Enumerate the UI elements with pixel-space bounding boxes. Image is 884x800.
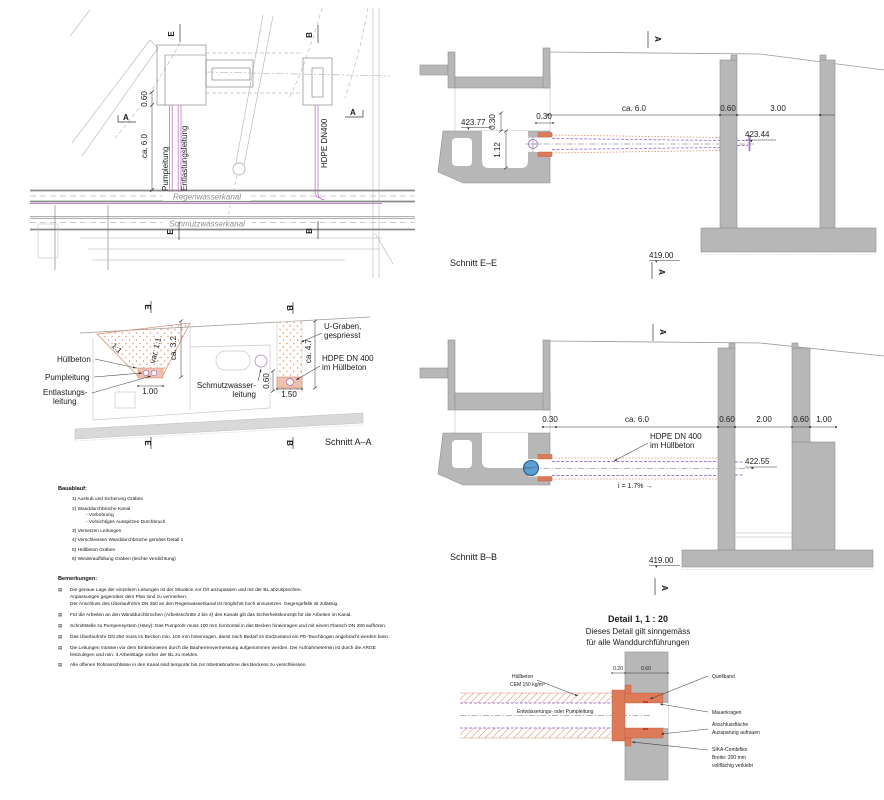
plan-dim-ca6: ca. 6.0: [140, 133, 149, 158]
detail-dim-020: 0.20: [613, 666, 623, 672]
regenwasserkanal-label: Regenwasserkanal: [173, 193, 241, 202]
bemerkung-text: Für die Arbeiten an den Wanddurchbrüchen…: [70, 612, 395, 619]
plan-structures: [157, 45, 390, 105]
bemerkung-text: Die genaue Lage der einzelnen Leitungen …: [70, 587, 395, 609]
bullet-icon: ▤: [58, 662, 70, 669]
detail-huellbeton-label1: Hüllbeton: [512, 674, 533, 680]
ee-dim-060: 0.60: [720, 104, 736, 113]
detail-anschluss-label2: Aussparung aufrauen: [712, 730, 760, 736]
aa-entlastung-label1: Entlastungs-: [43, 388, 88, 397]
schnitt-bb-drawing: 0.30 ca. 6.0 0.60 2.00 0.60 1.00 HDPE DN…: [420, 300, 884, 600]
schmutzwasserkanal-label: Schmutzwasserkanal: [169, 220, 245, 229]
aa-dim-100: 1.00: [142, 387, 158, 396]
bemerkung-item: ▤ Die Leitungen müssen vor dem Einbetoni…: [58, 645, 403, 659]
marker-b-top: B: [305, 32, 314, 38]
bb-dim-100: 1.00: [816, 415, 832, 424]
quellband-joint-icon: [643, 701, 648, 703]
detail-1-drawing: Detail 1, 1 : 20 Dieses Detail gilt sinn…: [460, 600, 884, 800]
bb-left-structure: [420, 340, 552, 485]
regenwasserkanal-band: Regenwasserkanal: [30, 191, 415, 202]
bauablauf-item: 1) Aushub und Sicherung Gräben: [72, 497, 398, 502]
pumpleitung-label: Pumpleitung: [161, 147, 170, 191]
bauablauf-block: Bauablauf: 1) Aushub und Sicherung Gräbe…: [58, 486, 398, 567]
detail-dim-060: 0.60: [641, 666, 651, 672]
detail-huellbeton-label2: CEM 150 kg/m³: [510, 682, 545, 688]
marker-a-left: A: [123, 113, 129, 122]
plan-pipes: [30, 105, 382, 204]
detail-sika-label3: vollflächig verklebt: [712, 763, 753, 769]
schnitt-aa-drawing: 1:1 var. 1:1 ca. 3.2 1.00 0.60 1.50 ca. …: [30, 296, 460, 466]
bauablauf-heading: Bauablauf:: [58, 486, 398, 492]
aa-marker-e-top: E: [143, 304, 152, 310]
aa-pumpleitung-label: Pumpleitung: [45, 373, 89, 382]
plan-lower-context: [38, 205, 393, 270]
bb-dim-060b: 0.60: [793, 415, 809, 424]
aa-marker-b-top: B: [285, 305, 294, 311]
ee-dim-300: 3.00: [770, 104, 786, 113]
ee-level-42377: 423.77: [461, 118, 486, 127]
aa-ugraben-label1: U-Graben,: [324, 322, 361, 331]
entlastungsleitung-label: Entlastungsleitung: [180, 126, 189, 191]
plan-context-lines: [70, 8, 379, 278]
bb-slope-label: i = 1.7% →: [618, 483, 652, 490]
aa-marker-b-bottom: B: [285, 440, 294, 446]
ee-shaft: [701, 55, 876, 255]
ee-marker-a-bottom: A: [657, 269, 666, 275]
bb-dim-ca6: ca. 6.0: [625, 415, 650, 424]
bemerkungen-block: Bemerkungen: ▤ Die genaue Lage der einze…: [58, 576, 403, 673]
marker-a-right: A: [350, 108, 356, 117]
bullet-icon: ▤: [58, 645, 70, 659]
ee-left-structure: [420, 48, 552, 183]
detail-mauerkragen-label: Mauerkragen: [712, 710, 742, 716]
detail-subtitle-2: für alle Wanddurchführungen: [587, 638, 690, 647]
bb-dim-030: 0.30: [542, 415, 558, 424]
bemerkung-text: Alle offenen Rohranschlüsse in den Kanal…: [70, 662, 395, 669]
bauablauf-item: 3) Versetzen Leitungen: [72, 529, 398, 534]
bemerkung-item: ▤ Die genaue Lage der einzelnen Leitunge…: [58, 587, 403, 609]
bemerkung-text: Das Überlaufrohr DN 250 muss im Becken m…: [70, 634, 395, 641]
marker-e-top: E: [167, 31, 176, 37]
schnitt-ee-title: Schnitt E–E: [450, 258, 497, 268]
bauablauf-subitem: - Vorbohrung: [86, 513, 398, 518]
bullet-icon: ▤: [58, 634, 70, 641]
ee-dim-ca6: ca. 6.0: [622, 104, 647, 113]
ee-dim-030v: 0.30: [488, 114, 497, 130]
bemerkung-text: Die Leitungen müssen vor dem Einbetonier…: [70, 645, 395, 659]
schnitt-bb-title: Schnitt B–B: [450, 552, 497, 562]
bemerkung-item: ▤ Das Überlaufrohr DN 250 muss im Becken…: [58, 634, 403, 641]
aa-schmutz-label1: Schmutzwasser-: [197, 381, 256, 390]
bemerkungen-heading: Bemerkungen:: [58, 576, 403, 582]
bemerkung-text: Schnittstelle zu Pumpensystem (Häny): Da…: [70, 623, 395, 630]
ee-section-markers: A A: [648, 31, 666, 279]
bb-section-markers: A A: [653, 324, 669, 595]
bullet-icon: ▤: [58, 612, 70, 619]
schmutzwasserkanal-band: Schmutzwasserkanal: [30, 217, 415, 230]
plan-dim-060: 0.60: [140, 91, 149, 107]
detail-leitung-label: Entwässerungs- oder Pumpleitung: [517, 709, 594, 715]
aa-entlastung-label2: leitung: [53, 397, 77, 406]
drawing-sheet: Regenwasserkanal Schmutzwasserkanal E B …: [0, 0, 884, 800]
marker-b-bottom: B: [305, 228, 314, 234]
bauablauf-item: 6) Wiederauffüllung Gräben (leichte Verd…: [72, 557, 398, 562]
bauablauf-item: 4) Verschliessen Wanddurchbrüche gemäss …: [72, 538, 398, 543]
ee-level-41900: 419.00: [649, 251, 674, 260]
bauablauf-subitem: - Vorsichtiges Ausspitzen Durchbruch: [86, 520, 398, 525]
bauablauf-item: 5) Hüllbeton Gräben: [72, 548, 398, 553]
aa-dim-060: 0.60: [262, 373, 271, 389]
bb-level-42255: 422.55: [745, 457, 770, 466]
schnitt-aa-title: Schnitt A–A: [325, 437, 372, 447]
bemerkung-item: ▤ Für die Arbeiten an den Wanddurchbrüch…: [58, 612, 403, 619]
detail-title: Detail 1, 1 : 20: [608, 614, 668, 624]
ee-dim-030h: 0.30: [536, 112, 552, 121]
detail-sika-label1: SIKA-Combiflex: [712, 747, 748, 753]
aa-ugraben-label2: gespriesst: [324, 331, 361, 340]
bb-hdpe-label2: im Hüllbeton: [650, 441, 694, 450]
marker-e-bottom: E: [166, 229, 175, 235]
aa-dim-ca32: ca. 3.2: [169, 335, 178, 360]
ee-dim-112: 1.12: [493, 142, 502, 158]
quellband-joint-icon: [643, 728, 648, 730]
bb-shaft: [682, 343, 873, 570]
bemerkung-item: ▤ Schnittstelle zu Pumpensystem (Häny): …: [58, 623, 403, 630]
aa-right-trench: [277, 321, 302, 392]
aa-schmutz-label2: leitung: [232, 390, 256, 399]
site-plan-drawing: Regenwasserkanal Schmutzwasserkanal E B …: [30, 8, 422, 284]
ee-level-42344: 423.44: [745, 130, 770, 139]
detail-quellband-label: Quellband: [712, 674, 735, 680]
detail-subtitle-1: Dieses Detail gilt sinngemäss: [586, 627, 691, 636]
bullet-icon: ▤: [58, 587, 70, 609]
bb-dim-200: 2.00: [756, 415, 772, 424]
aa-marker-e-bottom: E: [143, 440, 152, 446]
aa-huellbeton-label: Hüllbeton: [57, 355, 91, 364]
aa-dim-150: 1.50: [281, 390, 297, 399]
bauablauf-item: 2) Wanddurchbrüche Kanal: [72, 507, 398, 512]
bb-marker-a-top: A: [658, 329, 667, 335]
aa-hdpe-label2: im Hüllbeton: [322, 363, 366, 372]
detail-sika-label2: Breite: 200 mm: [712, 755, 746, 761]
plan-dimensions: 0.60 ca. 6.0 Pumpleitung Entlastungsleit…: [140, 90, 329, 192]
aa-dim-ca47: ca. 4.7: [304, 338, 313, 363]
aa-hdpe-label1: HDPE DN 400: [322, 354, 374, 363]
bb-marker-a-bottom: A: [660, 585, 669, 591]
schmutzwasser-pipe-section: [255, 355, 267, 367]
bullet-icon: ▤: [58, 623, 70, 630]
bb-level-41900: 419.00: [649, 556, 674, 565]
ee-marker-a-top: A: [653, 36, 662, 42]
bemerkung-item: ▤ Alle offenen Rohranschlüsse in den Kan…: [58, 662, 403, 669]
hdpe-dn400-label: HDPE DN400: [320, 118, 329, 168]
bb-dim-060a: 0.60: [719, 415, 735, 424]
detail-anschluss-label1: Anschlussfläche: [712, 722, 748, 728]
bb-hdpe-label1: HDPE DN 400: [650, 432, 702, 441]
schnitt-ee-drawing: ca. 6.0 0.60 3.00 423.77 0.30 1.12 0.30 …: [420, 18, 884, 286]
